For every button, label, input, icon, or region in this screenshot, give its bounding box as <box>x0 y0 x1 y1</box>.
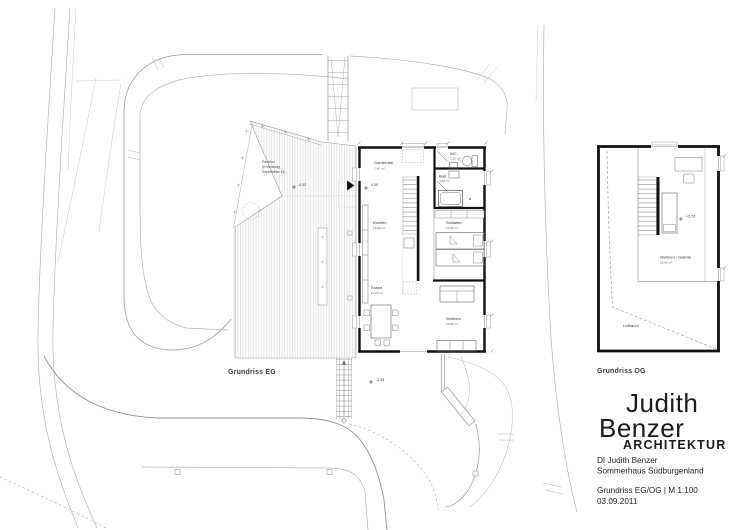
eg-kitchen-counter <box>363 205 369 303</box>
og-lounger-pillow <box>664 225 676 232</box>
building-og <box>597 142 726 352</box>
og-dimension-ticks <box>723 155 726 270</box>
plan-drawing: Pavilion (Errichtung September 11) -0,02… <box>0 0 749 530</box>
driveway-right-curve <box>350 56 507 134</box>
architect-name: DI Judith Benzer <box>597 456 658 465</box>
driveway-right-hatch <box>477 64 497 83</box>
chair-1 <box>364 310 370 316</box>
room-label-wohnen: Wohnen <box>446 316 461 321</box>
level-deck: -0,02 <box>298 183 306 187</box>
chair-2 <box>364 325 370 331</box>
chair-5 <box>375 340 381 346</box>
eg-core-wall <box>417 176 420 281</box>
south-stairs <box>337 358 374 423</box>
footpath-north <box>328 56 348 141</box>
caption-grundriss-og: Grundriss OG <box>597 368 646 375</box>
level-cross-entry <box>364 186 368 190</box>
room-label-schlafen: Schlafen <box>446 220 462 225</box>
deck-bench <box>318 228 327 305</box>
veg-dashed-2 <box>0 477 106 528</box>
terrain-faint-top <box>76 80 122 81</box>
room-area-galerie: 31,90 m² <box>660 261 672 265</box>
dining-table <box>371 305 391 338</box>
room-label-wc: WC <box>450 151 457 156</box>
bed-2-fold <box>453 254 460 262</box>
road-left-inner <box>53 8 97 528</box>
south-walkway <box>442 354 480 507</box>
bed-2-pillow <box>474 252 483 263</box>
wc-door-swing <box>437 151 447 161</box>
pavilion-note-line1: Pavilion <box>262 160 275 164</box>
level-cross-og <box>679 217 683 221</box>
road-south-dark <box>44 356 387 530</box>
veg-dashed-1 <box>349 424 438 510</box>
parking-pad <box>412 88 458 110</box>
eg-kitchen-appliance <box>404 238 414 248</box>
room-area-garderobe: 7,40 m² <box>374 167 385 171</box>
logo-architektur: ARCHITEKTUR <box>623 438 726 452</box>
fence-post-1 <box>175 470 180 475</box>
chair-3 <box>393 310 399 316</box>
room-area-kochen: 15,80 m² <box>373 226 385 230</box>
fence-post-2 <box>327 470 332 475</box>
level-terrain: -2,93 <box>376 378 384 382</box>
og-core-wall <box>657 177 660 235</box>
utility-line-top <box>536 25 538 100</box>
eg-kitchen-dashed-unit <box>403 282 417 294</box>
eg-wardrobe <box>403 150 424 163</box>
deck-surface <box>235 121 356 358</box>
eg-closet-strip <box>435 211 484 219</box>
level-entry: 0,00 <box>371 183 378 187</box>
bed-1-fold <box>450 236 457 244</box>
south-stairs-newel <box>342 419 346 423</box>
fence-line-south <box>142 467 368 530</box>
garden-s-curve-outer <box>448 357 512 507</box>
footpath-rungs <box>328 56 348 141</box>
sheet-date: 03.09.2011 <box>597 497 638 506</box>
room-label-bad: Bad <box>439 174 446 179</box>
og-luftraum-dashed <box>607 151 716 349</box>
bathtub-inner <box>441 193 461 205</box>
eg-stairs-treads <box>403 177 417 234</box>
og-lounger <box>662 193 677 233</box>
room-label-galerie: Wohnen / Galerie <box>660 255 692 260</box>
property-line <box>543 25 577 512</box>
room-area-essen: 11,20 m² <box>371 291 383 295</box>
road-left-short <box>68 8 76 170</box>
sofa-2 <box>437 341 476 352</box>
room-area-wohnen: 26,80 m² <box>446 322 458 326</box>
og-chair <box>684 174 695 183</box>
bad-sink <box>449 171 459 178</box>
pavilion-note-line3: September 11) <box>262 170 286 174</box>
room-label-essen: Essen <box>371 285 382 290</box>
deck-post-2 <box>348 296 352 300</box>
bed-1-pillow <box>474 235 483 246</box>
level-og: +2,73 <box>686 215 695 219</box>
deck-post-1 <box>348 231 352 235</box>
eg-dimension-ticks <box>358 142 494 353</box>
essen-dining <box>364 305 398 346</box>
og-stairs-treads <box>638 177 657 235</box>
deck-edge-band-left <box>234 123 253 229</box>
pavilion-deck <box>233 121 356 358</box>
project-name: Sommerhaus Südburgenland <box>597 467 704 476</box>
og-desk <box>675 158 702 172</box>
caption-grundriss-eg: Grundriss EG <box>228 369 276 376</box>
room-area-wc: 1,50 m² <box>450 157 461 161</box>
room-area-schlafen: 11,80 m² <box>446 226 458 230</box>
title-block: Judith Benzer ARCHITEKTUR DI Judith Benz… <box>597 388 726 506</box>
terrain-diagonal-2 <box>99 83 121 232</box>
eg-window-markers <box>353 144 491 329</box>
garden-steps-1 <box>497 434 514 440</box>
sheet-title: Grundriss EG/OG | M 1:100 <box>597 486 698 495</box>
room-label-luftraum: Luftraum <box>623 323 639 328</box>
chair-4 <box>393 325 399 331</box>
pavilion-note-line2: (Errichtung <box>262 165 280 169</box>
building-eg <box>353 142 494 353</box>
garden-steps-2 <box>543 483 563 494</box>
walkway-link <box>442 354 445 392</box>
schlafen-beds <box>436 233 484 267</box>
driveway-hatch-2 <box>128 150 140 160</box>
chair-6 <box>384 340 390 346</box>
toilet-icon <box>463 156 472 166</box>
floor-drain <box>469 198 471 200</box>
toilet-tank <box>472 156 478 167</box>
room-area-bad: 4,50 m² <box>439 179 450 183</box>
room-label-garderobe: Garderobe <box>374 160 394 165</box>
level-cross-terrain <box>369 380 373 384</box>
walkway-post <box>473 471 478 476</box>
walkway-curve <box>445 424 479 507</box>
walkway-ramp <box>442 387 476 426</box>
room-label-kochen: Kochen <box>373 220 387 225</box>
drawing-sheet: Pavilion (Errichtung September 11) -0,02… <box>0 0 749 530</box>
